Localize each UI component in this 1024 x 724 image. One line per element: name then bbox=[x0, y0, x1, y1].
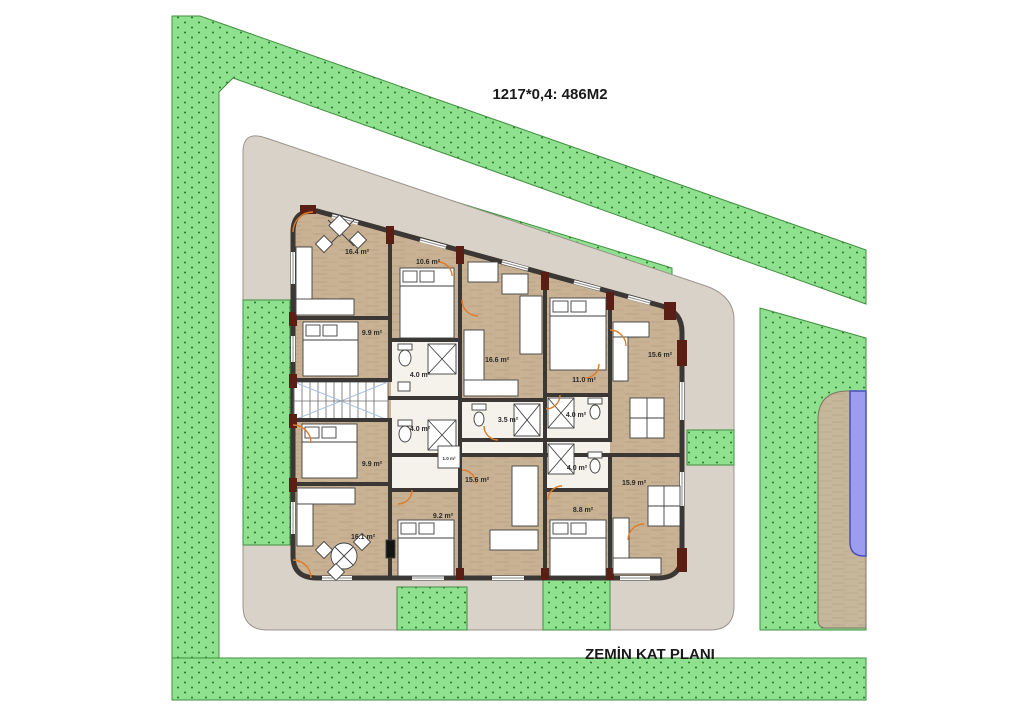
room-label-bath-lower-right: 4.0 m² bbox=[567, 465, 588, 472]
site-plan-page: 16.4 m² 10.6 m² 9.9 m² 4.0 m² 16.6 m² 11… bbox=[0, 0, 1024, 724]
room-label-bedroom-lower-mid: 9.2 m² bbox=[433, 513, 454, 520]
room-label-bath-lower-left: 4.0 m² bbox=[410, 426, 431, 433]
room-label-living-top-left: 16.4 m² bbox=[345, 249, 370, 256]
room-label-bedroom-upper-left: 9.9 m² bbox=[362, 330, 383, 337]
room-label-living-top-center: 16.6 m² bbox=[485, 357, 510, 364]
bed bbox=[303, 322, 358, 376]
floor-plan-drawing: 16.4 m² 10.6 m² 9.9 m² 4.0 m² 16.6 m² 11… bbox=[0, 0, 1024, 724]
room-label-bedroom-lower-left: 9.9 m² bbox=[362, 461, 383, 468]
swimming-pool bbox=[850, 391, 866, 556]
grass-patch-bottom-2 bbox=[543, 580, 610, 630]
bed bbox=[400, 268, 454, 338]
pool-area bbox=[818, 391, 866, 628]
room-label-living-bottom-left: 16.1 m² bbox=[351, 534, 376, 541]
grass-patch-right bbox=[687, 430, 734, 465]
dining-table bbox=[630, 398, 664, 438]
room-label-bath-center: 3.5 m² bbox=[498, 417, 519, 424]
sink bbox=[398, 382, 410, 391]
room-label-bedroom-top-mid: 10.6 m² bbox=[416, 259, 441, 266]
room-label-living-lower-right: 15.9 m² bbox=[622, 480, 647, 487]
grass-patch-bottom-1 bbox=[397, 587, 467, 630]
plan-title: 1217*0,4: 486M2 bbox=[492, 86, 607, 103]
grass-area-bottom-band bbox=[172, 658, 866, 700]
room-label-storage: 1.0 m² bbox=[442, 456, 456, 461]
appliance bbox=[386, 540, 395, 558]
bed bbox=[302, 424, 357, 478]
bed bbox=[550, 520, 606, 576]
corridor-center bbox=[461, 441, 545, 455]
room-label-bedroom-top-right: 11.0 m² bbox=[572, 377, 596, 384]
shower bbox=[428, 344, 456, 374]
room-label-living-lower-center: 15.6 m² bbox=[465, 477, 490, 484]
staircase bbox=[294, 382, 388, 420]
room-label-bedroom-lower-right: 8.8 m² bbox=[573, 507, 594, 514]
bed bbox=[398, 520, 454, 576]
room-label-bath-upper-right: 4.0 m² bbox=[566, 412, 587, 419]
room-label-bath-upper-left: 4.0 m² bbox=[410, 372, 431, 379]
room-label-living-top-far-right: 15.6 m² bbox=[648, 352, 673, 359]
shower bbox=[428, 420, 456, 450]
dining-table bbox=[648, 486, 680, 526]
grass-patch-left bbox=[243, 300, 290, 545]
plan-caption: ZEMİN KAT PLANI bbox=[585, 646, 715, 663]
toilet bbox=[398, 344, 412, 366]
bed bbox=[550, 298, 606, 370]
